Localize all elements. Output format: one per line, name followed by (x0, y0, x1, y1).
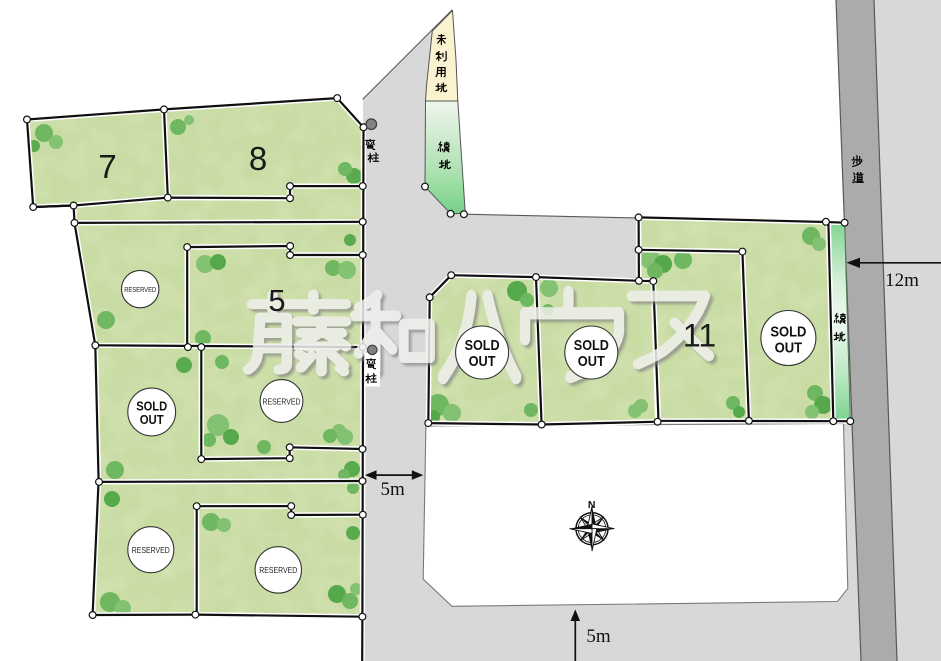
svg-text:7: 7 (98, 148, 116, 185)
svg-text:RESERVED: RESERVED (124, 285, 156, 294)
svg-text:RESERVED: RESERVED (263, 397, 301, 406)
svg-text:11: 11 (683, 318, 716, 354)
svg-text:N: N (588, 499, 596, 511)
svg-text:5m: 5m (381, 479, 406, 500)
svg-text:OUT: OUT (469, 353, 496, 370)
svg-text:5: 5 (268, 283, 285, 318)
svg-text:SOLD: SOLD (574, 337, 609, 354)
svg-text:OUT: OUT (775, 340, 803, 357)
svg-text:OUT: OUT (140, 412, 164, 427)
svg-text:RESERVED: RESERVED (259, 566, 297, 575)
svg-text:8: 8 (249, 140, 267, 177)
svg-text:RESERVED: RESERVED (132, 546, 170, 555)
svg-text:12m: 12m (885, 270, 919, 291)
svg-text:SOLD: SOLD (770, 324, 806, 341)
svg-text:SOLD: SOLD (465, 337, 500, 354)
svg-text:OUT: OUT (578, 353, 605, 370)
svg-text:5m: 5m (586, 626, 611, 647)
